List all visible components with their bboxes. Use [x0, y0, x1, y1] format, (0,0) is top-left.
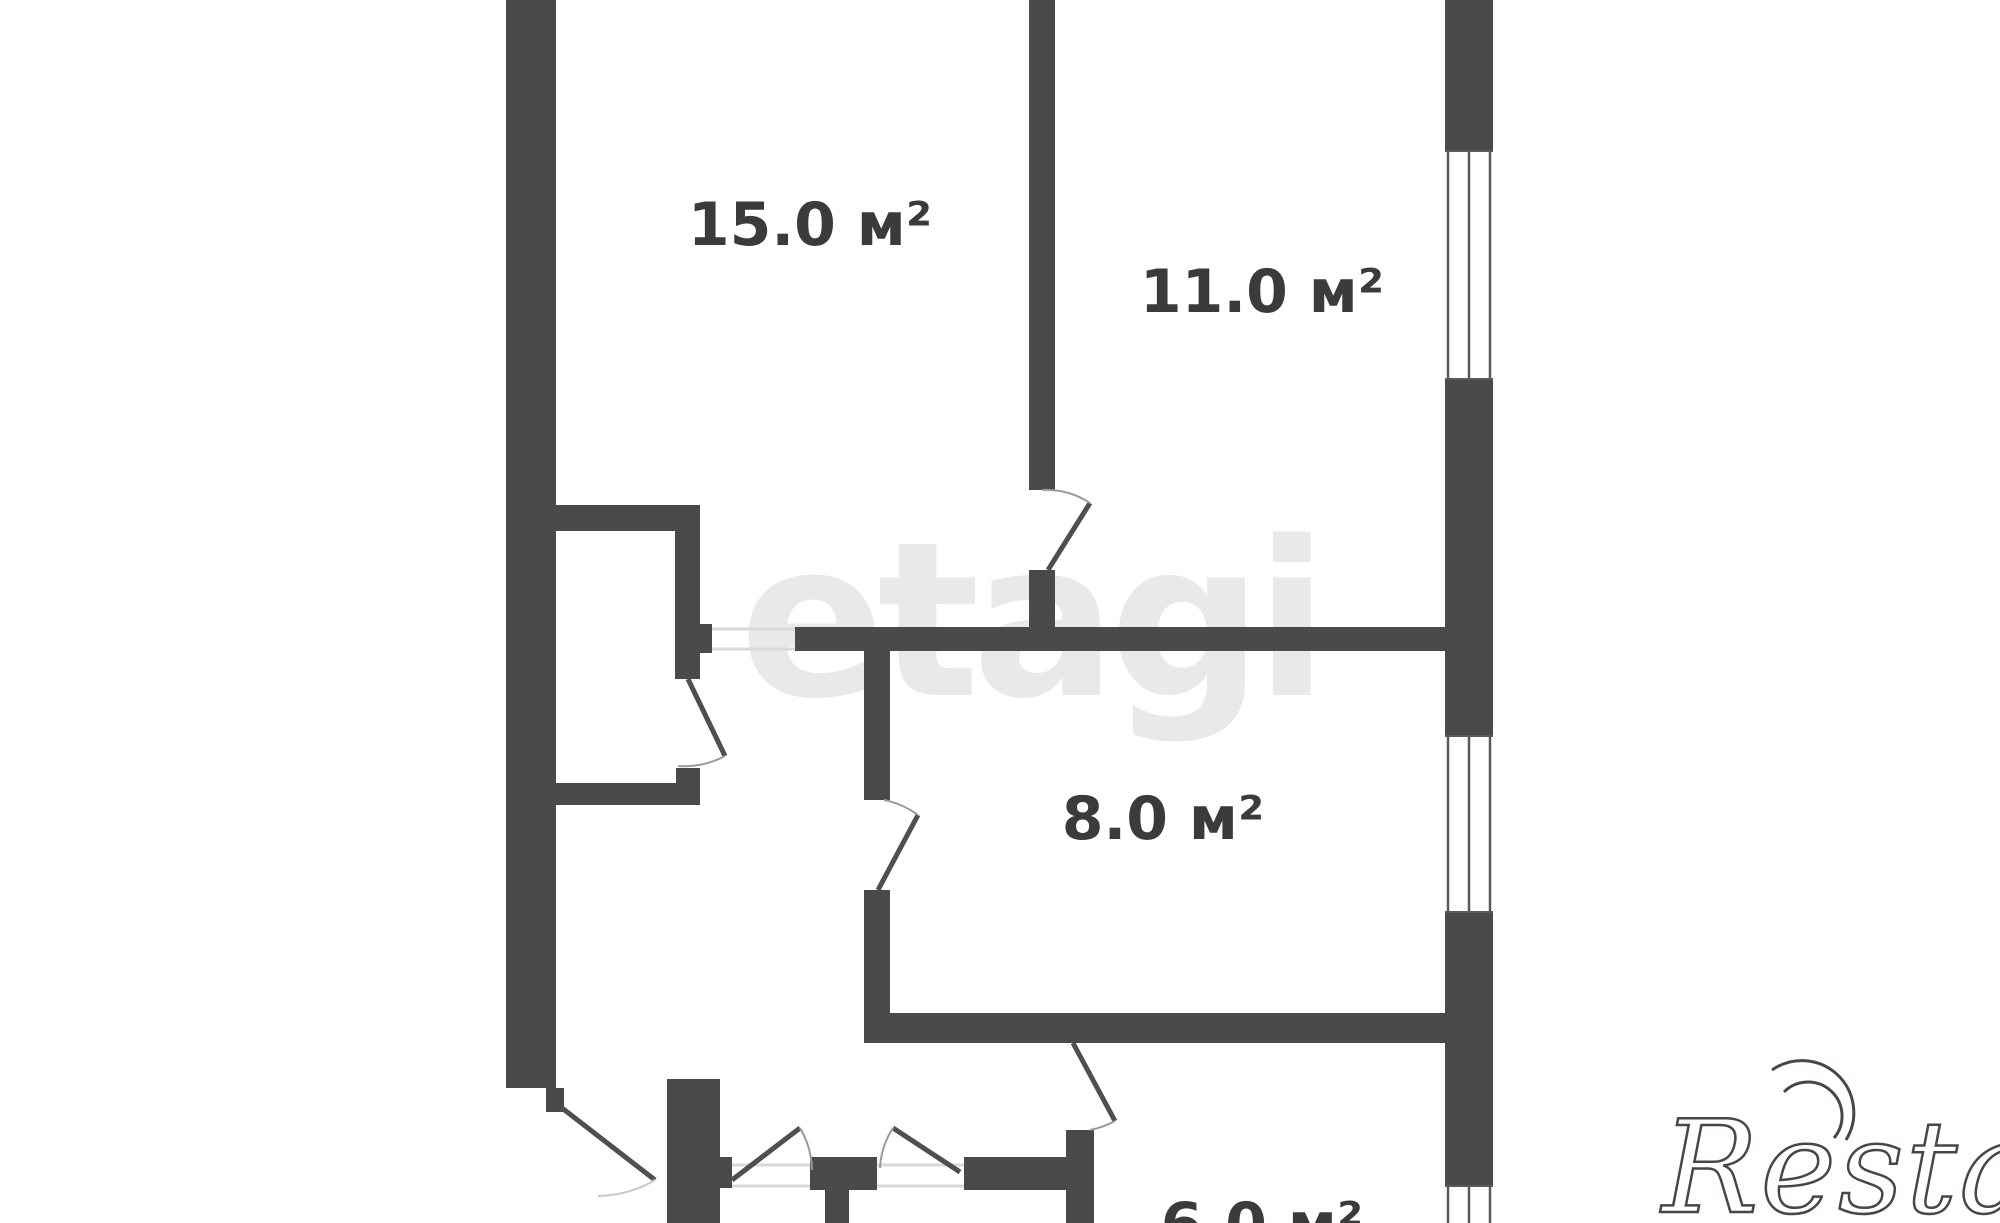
wall-divider-15-11-upper	[1029, 0, 1055, 490]
door-leaf-closet	[688, 679, 725, 756]
room-area-label-11: 11.0 м²	[1140, 257, 1384, 327]
wall-right-outer-seg3	[1445, 913, 1493, 1185]
room-area-label-15: 15.0 м²	[688, 190, 932, 260]
floorplan-drawing: etagi	[0, 0, 2000, 1223]
wall-right-outer-seg1	[1445, 0, 1493, 150]
room-area-label-6: 6.0 м²	[1161, 1190, 1364, 1223]
wall-wc-divider-stub	[825, 1190, 849, 1223]
window-1	[1445, 150, 1493, 380]
wall-wc-left	[667, 1079, 720, 1223]
watermark-restate-text: Restate	[1660, 1094, 2000, 1223]
door-leaf-entrance	[562, 1108, 655, 1180]
door-arc-room8	[884, 800, 918, 815]
door-leaf-room6	[1073, 1043, 1115, 1121]
door-arc-room6	[1090, 1121, 1115, 1130]
door-arc-closet	[678, 756, 725, 766]
wall-bottom-pier-1	[810, 1157, 877, 1190]
window-2	[1445, 735, 1493, 913]
watermark-restate: Restate	[1660, 1061, 2000, 1223]
wall-closet-right	[675, 505, 700, 679]
floorplan-canvas: etagi	[0, 0, 2000, 1223]
wall-room6-left	[1066, 1130, 1094, 1223]
wall-hall-top	[795, 627, 1490, 651]
door-arc-entrance	[598, 1180, 655, 1196]
window-3	[1445, 1185, 1493, 1223]
wall-divider-15-11-lower	[1029, 570, 1055, 651]
room-area-label-8: 8.0 м²	[1062, 784, 1265, 854]
wall-doorframe-stub-wc	[720, 1157, 732, 1188]
wall-bottom-pier-2	[964, 1157, 1066, 1190]
door-leaf-wc	[732, 1128, 800, 1180]
wall-closet-bottom	[556, 783, 700, 805]
wall-left-outer-door-stub	[546, 1088, 564, 1112]
wall-doorframe-stub-room15	[700, 624, 712, 653]
wall-room8-bottom	[864, 1013, 1490, 1043]
door-arc-bath	[880, 1128, 893, 1168]
door-leaf-room8	[878, 815, 918, 890]
wall-right-outer-seg2	[1445, 380, 1493, 735]
wall-left-outer	[506, 0, 556, 1088]
wall-room8-left-upper	[864, 651, 890, 800]
